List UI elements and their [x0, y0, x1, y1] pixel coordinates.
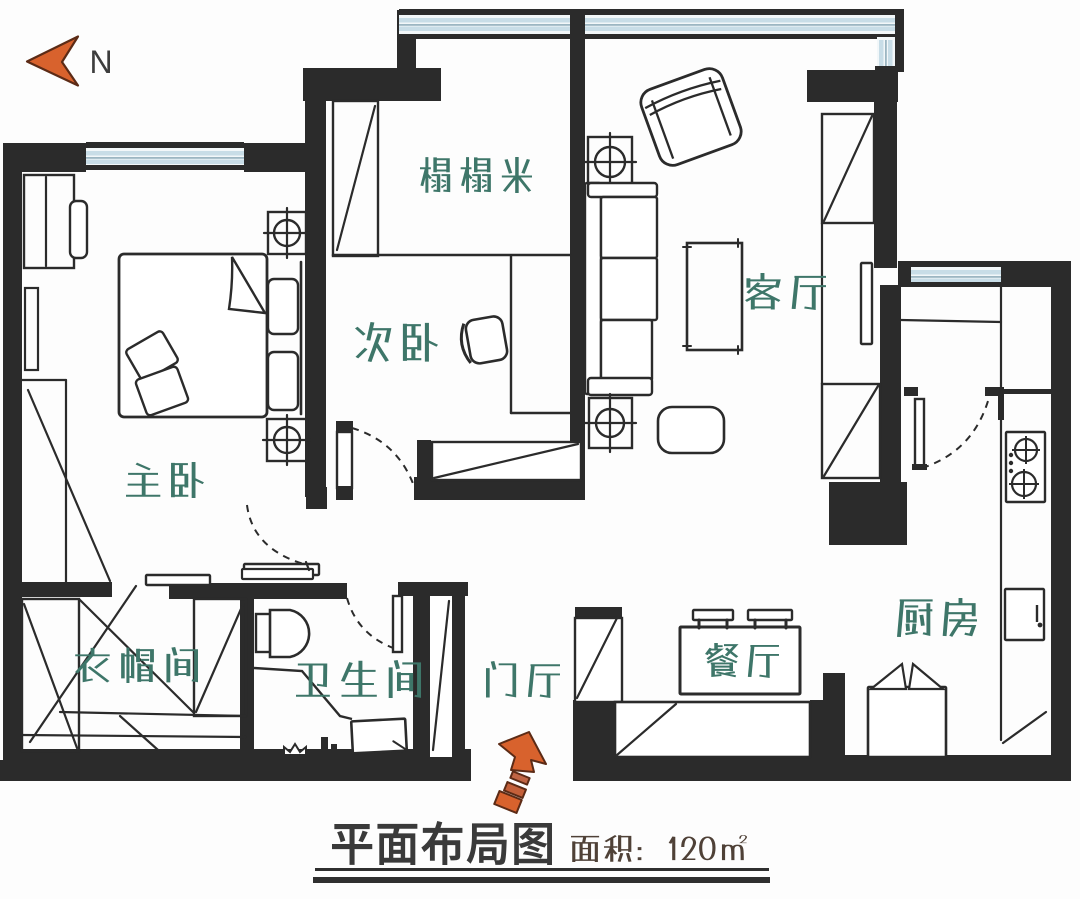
svg-text:N: N: [89, 44, 112, 80]
